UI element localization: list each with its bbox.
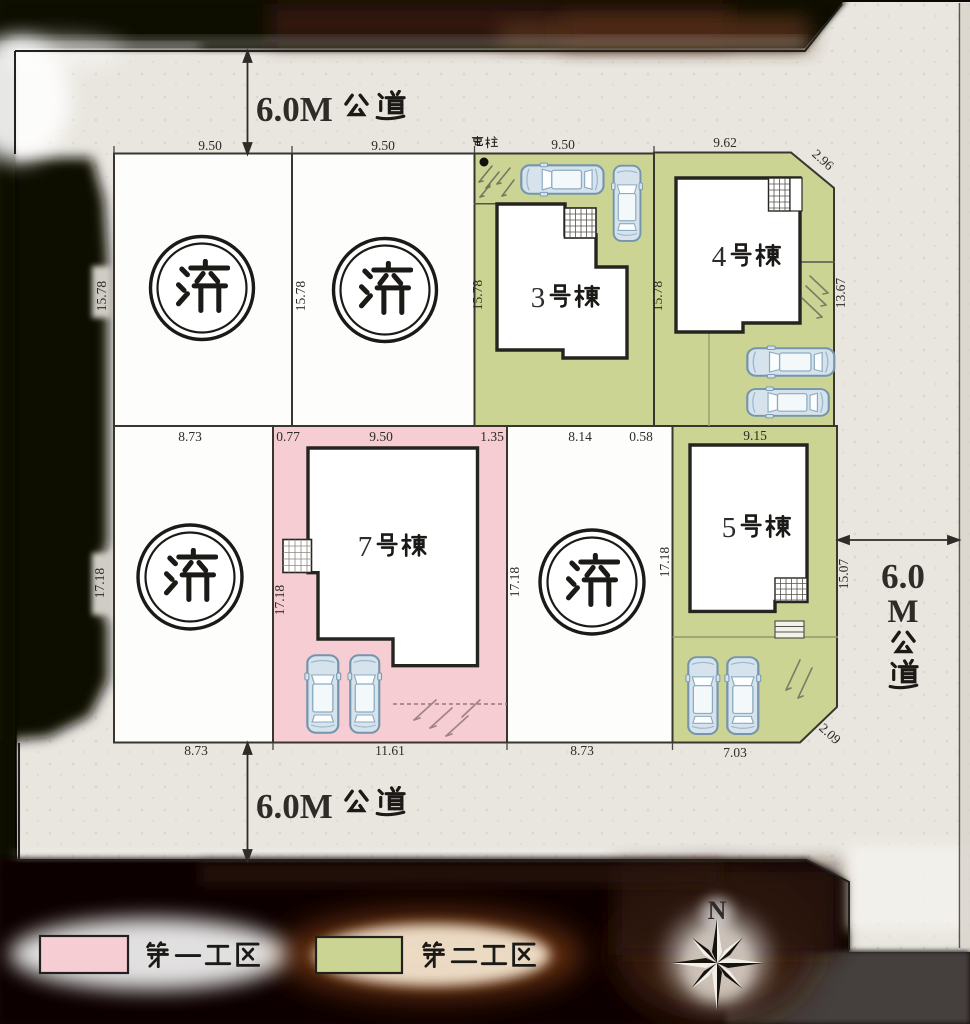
svg-text:8.73: 8.73 <box>570 743 594 758</box>
svg-text:7: 7 <box>358 531 373 563</box>
svg-text:8.73: 8.73 <box>184 743 208 758</box>
svg-text:7.03: 7.03 <box>723 745 747 760</box>
svg-text:6.0: 6.0 <box>881 557 925 596</box>
svg-text:9.50: 9.50 <box>369 429 393 444</box>
svg-text:13.67: 13.67 <box>833 278 848 309</box>
svg-text:11.61: 11.61 <box>375 743 405 758</box>
svg-text:15.78: 15.78 <box>94 281 109 312</box>
svg-text:17.18: 17.18 <box>272 585 287 616</box>
svg-text:5: 5 <box>722 512 737 544</box>
svg-text:9.50: 9.50 <box>371 138 395 153</box>
svg-text:15.78: 15.78 <box>293 281 308 312</box>
svg-text:8.14: 8.14 <box>568 429 592 444</box>
svg-text:9.62: 9.62 <box>713 135 737 150</box>
svg-text:1.35: 1.35 <box>480 429 504 444</box>
svg-text:4: 4 <box>712 241 727 273</box>
svg-text:8.73: 8.73 <box>178 429 202 444</box>
svg-text:0.77: 0.77 <box>276 429 300 444</box>
svg-text:N: N <box>708 896 727 925</box>
svg-text:17.18: 17.18 <box>507 567 522 598</box>
svg-text:9.50: 9.50 <box>551 137 575 152</box>
svg-text:9.15: 9.15 <box>743 428 767 443</box>
svg-text:M: M <box>887 594 918 630</box>
svg-text:15.78: 15.78 <box>470 280 485 311</box>
svg-text:6.0M: 6.0M <box>256 787 333 826</box>
svg-text:0.58: 0.58 <box>629 429 653 444</box>
svg-text:15.07: 15.07 <box>836 559 851 590</box>
svg-text:6.0M: 6.0M <box>256 90 333 129</box>
svg-text:3: 3 <box>531 282 546 314</box>
svg-text:17.18: 17.18 <box>657 547 672 578</box>
svg-text:17.18: 17.18 <box>92 568 107 599</box>
svg-text:15.78: 15.78 <box>650 281 665 312</box>
svg-text:9.50: 9.50 <box>198 138 222 153</box>
